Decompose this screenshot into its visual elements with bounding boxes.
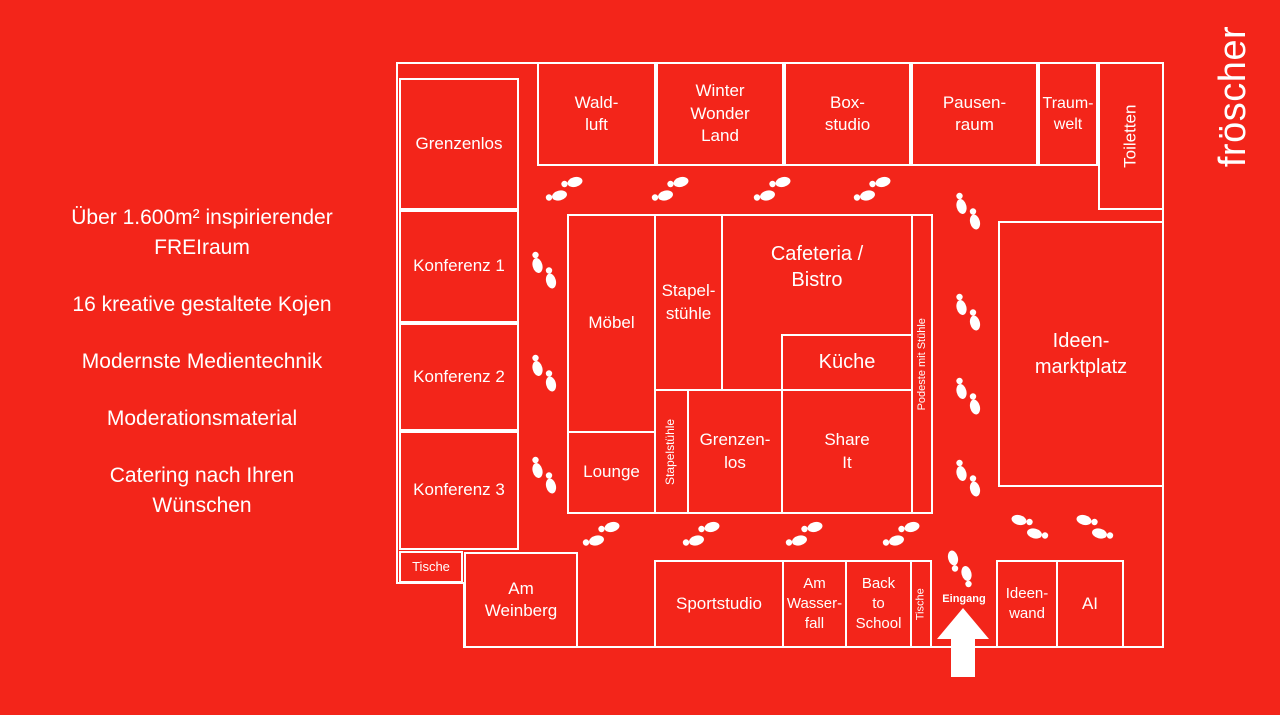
room-moebel	[568, 215, 655, 432]
building-outline	[397, 63, 1163, 647]
room-sportstudio	[655, 561, 783, 647]
room-winterwonderland	[657, 63, 783, 165]
footprints-icon	[531, 457, 558, 495]
room-konferenz2	[400, 324, 518, 430]
room-stapelstuehle1	[655, 215, 722, 390]
rooms-group	[400, 63, 1163, 647]
footprints-icon	[652, 175, 690, 202]
room-cafeteria	[722, 215, 912, 390]
footprints-icon	[955, 460, 982, 498]
footprints-icon	[854, 175, 892, 202]
room-stapelstuehle2	[655, 390, 688, 513]
footprints-icon	[546, 175, 584, 202]
entrance-arrow-icon	[937, 608, 989, 677]
room-ideenwand	[997, 561, 1057, 647]
footprints-icon	[786, 520, 824, 547]
footprints-group	[531, 175, 1113, 587]
room-kueche	[782, 335, 912, 390]
footprints-icon	[955, 193, 982, 231]
room-grenzenlos1	[400, 79, 518, 209]
room-boxstudio	[785, 63, 910, 165]
room-pausenraum	[912, 63, 1037, 165]
footprints-icon	[883, 520, 921, 547]
room-waldluft	[538, 63, 655, 165]
room-tische1	[400, 552, 462, 582]
room-shareit	[782, 390, 912, 513]
footprints-icon	[1010, 513, 1048, 540]
room-podeste	[912, 215, 932, 513]
footprints-icon	[683, 520, 721, 547]
footprints-icon	[754, 175, 792, 202]
footprints-icon	[955, 294, 982, 332]
room-tische2	[911, 561, 931, 647]
footprints-icon	[531, 355, 558, 393]
entrance-label: Eingang	[931, 591, 997, 607]
room-backtoschool	[846, 561, 911, 647]
room-toiletten	[1099, 63, 1163, 209]
room-ideenmarktplatz	[999, 222, 1163, 486]
footprints-icon	[583, 520, 621, 547]
room-amweinberg	[465, 553, 577, 647]
floorplan-svg	[0, 0, 1280, 715]
freiraum-floorplan-page: Über 1.600m² inspirierender FREIraum 16 …	[0, 0, 1280, 715]
room-ai	[1057, 561, 1123, 647]
footprints-icon	[946, 549, 973, 587]
room-konferenz1	[400, 211, 518, 322]
room-traumwelt	[1039, 63, 1097, 165]
footprints-icon	[531, 252, 558, 290]
room-grenzenlos2	[688, 390, 782, 513]
footprints-icon	[1075, 513, 1113, 540]
room-lounge	[568, 432, 655, 513]
room-konferenz3	[400, 432, 518, 549]
footprints-icon	[955, 378, 982, 416]
room-amwasserfall	[783, 561, 846, 647]
